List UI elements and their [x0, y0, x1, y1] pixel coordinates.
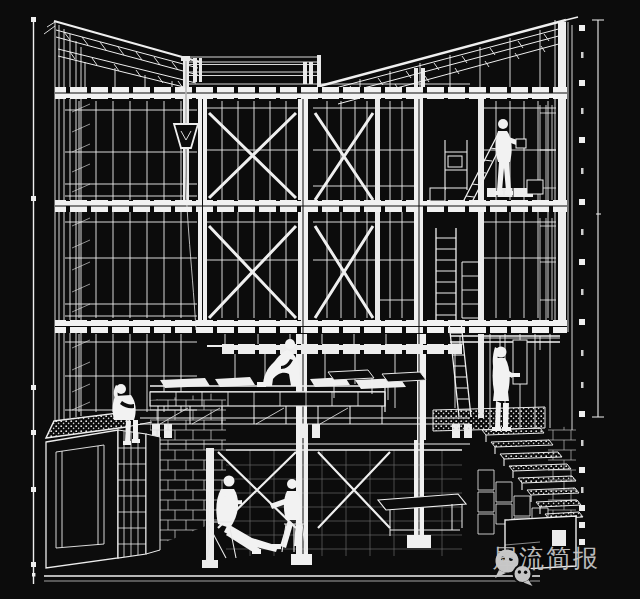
rubble-foundation	[150, 392, 226, 548]
scale-bar-left	[31, 17, 36, 584]
section-drawing	[0, 0, 640, 599]
scale-bar-right	[579, 20, 604, 545]
floor-slabs	[55, 87, 567, 333]
right-wall-section	[540, 20, 572, 430]
second-floor-ladder-rack	[436, 228, 480, 320]
basement	[202, 448, 466, 568]
watermark-text: 犀流简报	[492, 546, 600, 571]
figure-standing-third-floor	[495, 119, 526, 195]
left-box-room	[46, 411, 160, 568]
watermark: 犀流简报	[492, 546, 600, 571]
screenshot-root: 犀流简报	[0, 0, 640, 599]
ground-baseline	[44, 576, 540, 581]
